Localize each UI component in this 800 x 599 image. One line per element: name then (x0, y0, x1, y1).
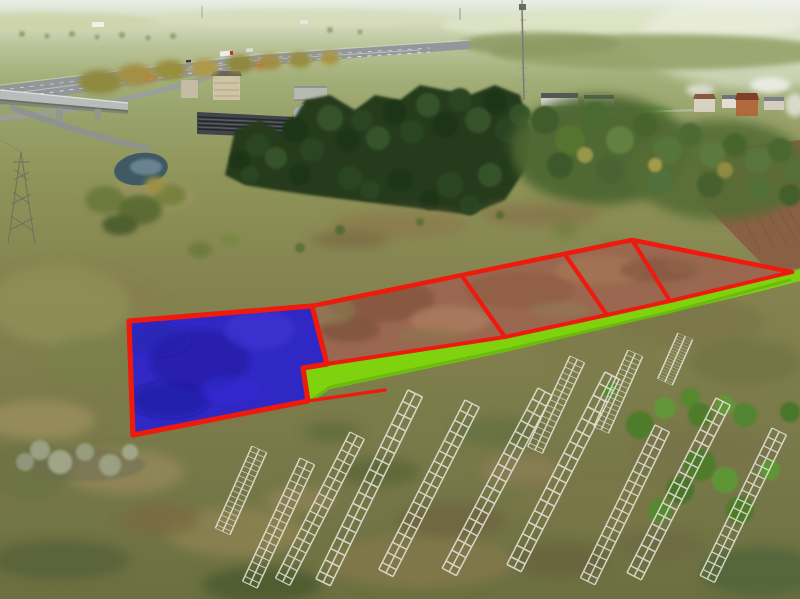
aerial-photo (0, 0, 800, 599)
